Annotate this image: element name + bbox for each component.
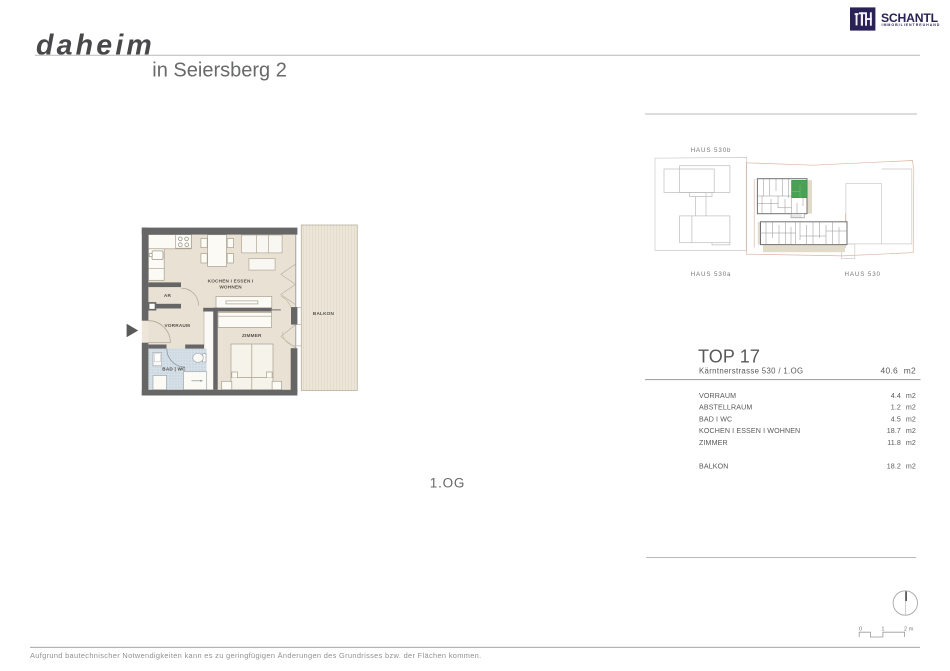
svg-text:11.8: 11.8 <box>887 439 901 447</box>
svg-text:BALKON: BALKON <box>313 311 335 316</box>
svg-text:WOHNEN: WOHNEN <box>219 285 242 290</box>
svg-text:4.4: 4.4 <box>891 392 901 400</box>
svg-text:ZIMMER: ZIMMER <box>699 439 728 447</box>
svg-text:1.2: 1.2 <box>891 404 901 412</box>
svg-text:1: 1 <box>881 627 884 633</box>
svg-text:18.7: 18.7 <box>887 427 901 435</box>
svg-text:1.OG: 1.OG <box>430 476 465 491</box>
svg-text:VORRAUM: VORRAUM <box>164 323 190 328</box>
svg-text:40.6: 40.6 <box>880 365 898 375</box>
svg-text:KOCHEN I ESSEN I WOHNEN: KOCHEN I ESSEN I WOHNEN <box>699 427 800 435</box>
svg-text:BALKON: BALKON <box>699 462 729 470</box>
svg-text:0: 0 <box>859 627 862 633</box>
svg-text:m2: m2 <box>906 439 916 447</box>
svg-text:Kärntnerstrasse 530 / 1.OG: Kärntnerstrasse 530 / 1.OG <box>699 367 803 376</box>
svg-text:VORRAUM: VORRAUM <box>699 392 736 400</box>
svg-text:m2: m2 <box>906 427 916 435</box>
svg-text:HAUS 530a: HAUS 530a <box>691 271 732 278</box>
svg-text:m2: m2 <box>904 365 916 375</box>
svg-text:in Seiersberg 2: in Seiersberg 2 <box>152 60 287 82</box>
svg-text:ABSTELLRAUM: ABSTELLRAUM <box>699 404 752 412</box>
svg-text:m2: m2 <box>906 404 916 412</box>
svg-text:ZIMMER: ZIMMER <box>242 333 262 338</box>
svg-text:BAD I WC: BAD I WC <box>699 415 732 423</box>
svg-text:HAUS 530b: HAUS 530b <box>691 147 732 154</box>
svg-text:HAUS 530: HAUS 530 <box>844 271 880 278</box>
svg-text:Aufgrund bautechnischer Notwen: Aufgrund bautechnischer Notwendigkeiten … <box>30 651 482 660</box>
svg-text:daheim: daheim <box>36 30 155 62</box>
svg-text:m2: m2 <box>906 462 916 470</box>
svg-text:2 m: 2 m <box>904 627 914 633</box>
svg-text:AR: AR <box>164 293 172 298</box>
svg-text:m2: m2 <box>906 415 916 423</box>
svg-text:m2: m2 <box>906 392 916 400</box>
svg-text:KOCHEN I ESSEN I: KOCHEN I ESSEN I <box>208 278 254 283</box>
svg-text:18.2: 18.2 <box>887 462 901 470</box>
svg-text:4.5: 4.5 <box>891 415 901 423</box>
svg-text:BAD | WC: BAD | WC <box>162 366 186 371</box>
svg-text:IMMOBILIENTREUHAND: IMMOBILIENTREUHAND <box>882 23 941 27</box>
svg-text:TOP 17: TOP 17 <box>698 347 760 367</box>
